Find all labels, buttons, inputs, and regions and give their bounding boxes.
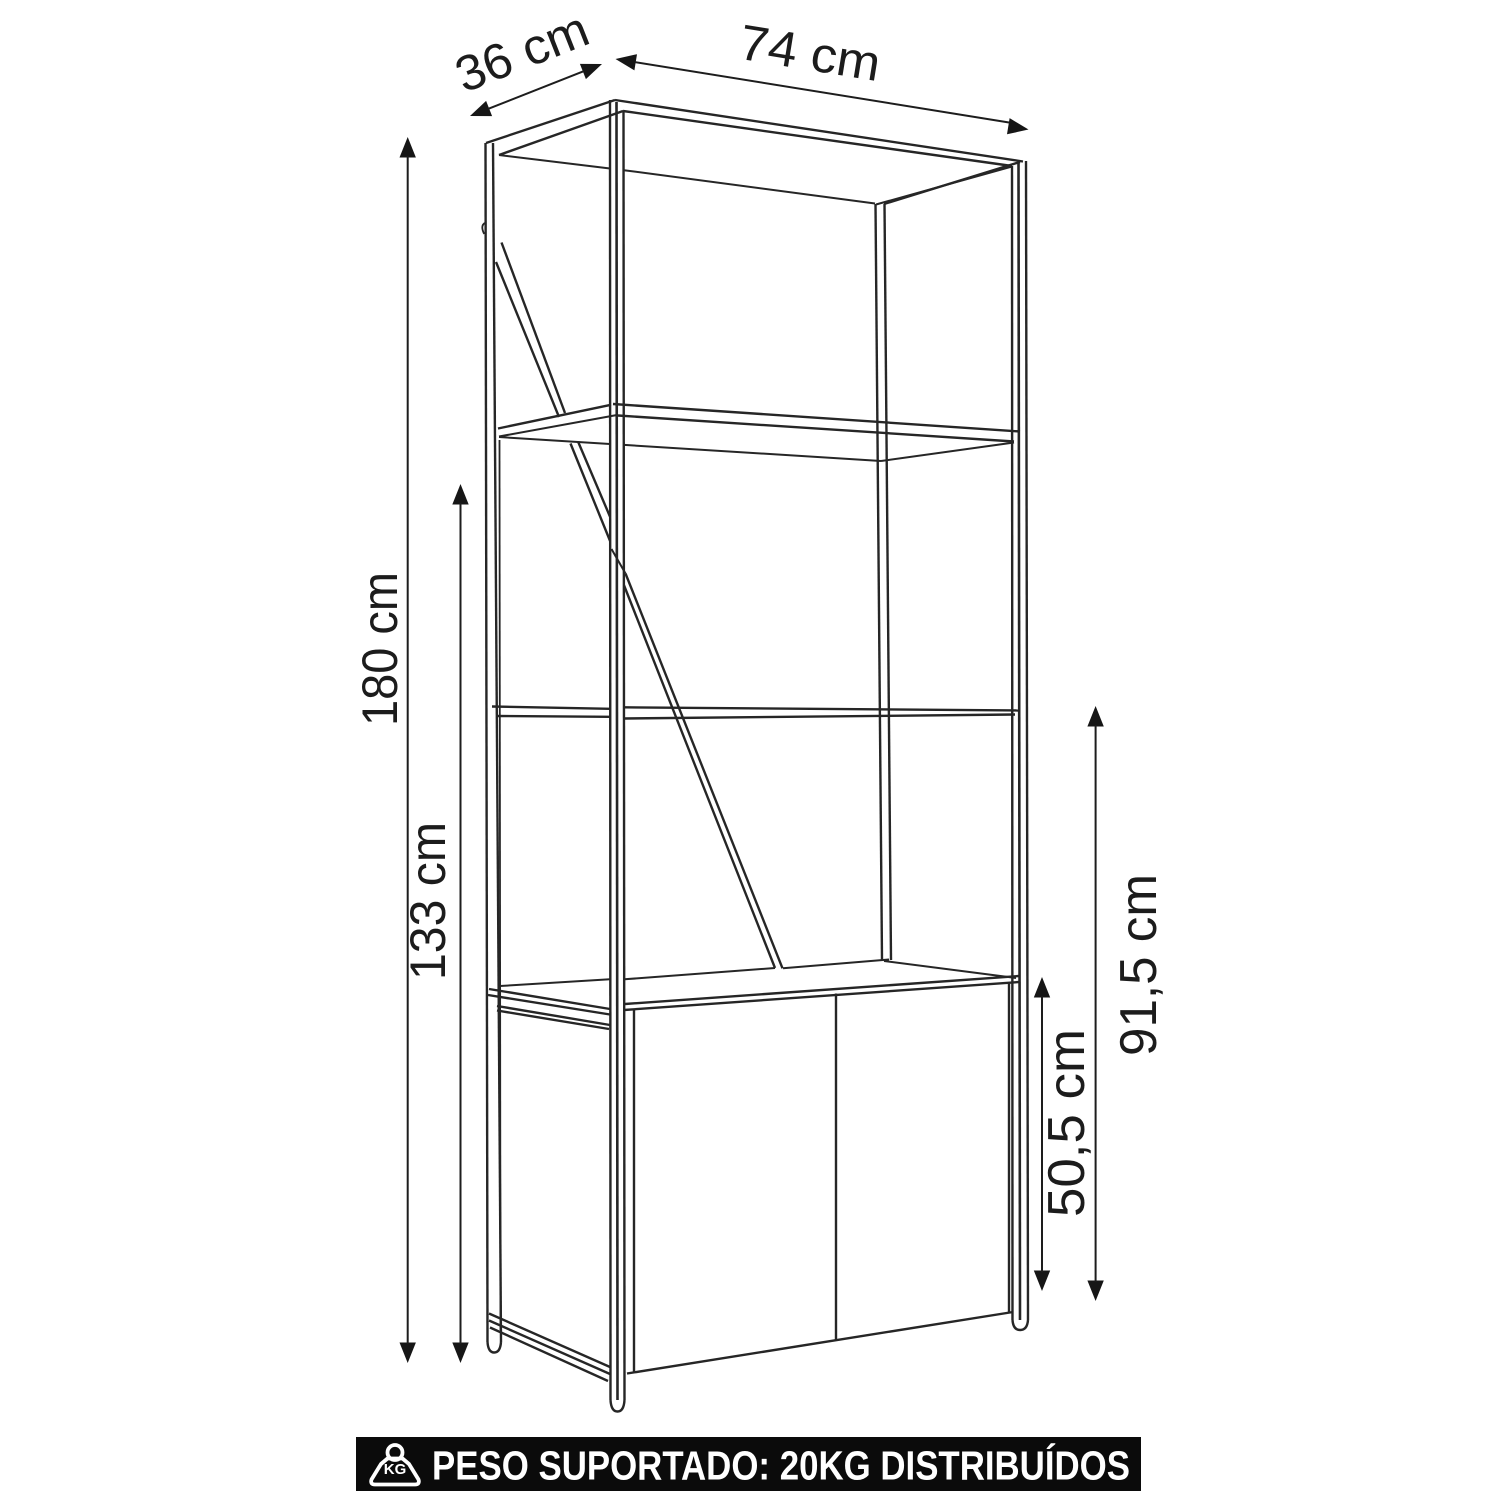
svg-text:91,5 cm: 91,5 cm <box>1110 874 1168 1056</box>
svg-text:50,5 cm: 50,5 cm <box>1038 1029 1096 1217</box>
svg-text:KG: KG <box>384 1461 407 1478</box>
svg-text:180 cm: 180 cm <box>352 572 408 726</box>
svg-text:PESO SUPORTADO: 20KG DISTRIBUÍ: PESO SUPORTADO: 20KG DISTRIBUÍDOS <box>432 1443 1130 1489</box>
svg-text:133 cm: 133 cm <box>400 822 456 980</box>
